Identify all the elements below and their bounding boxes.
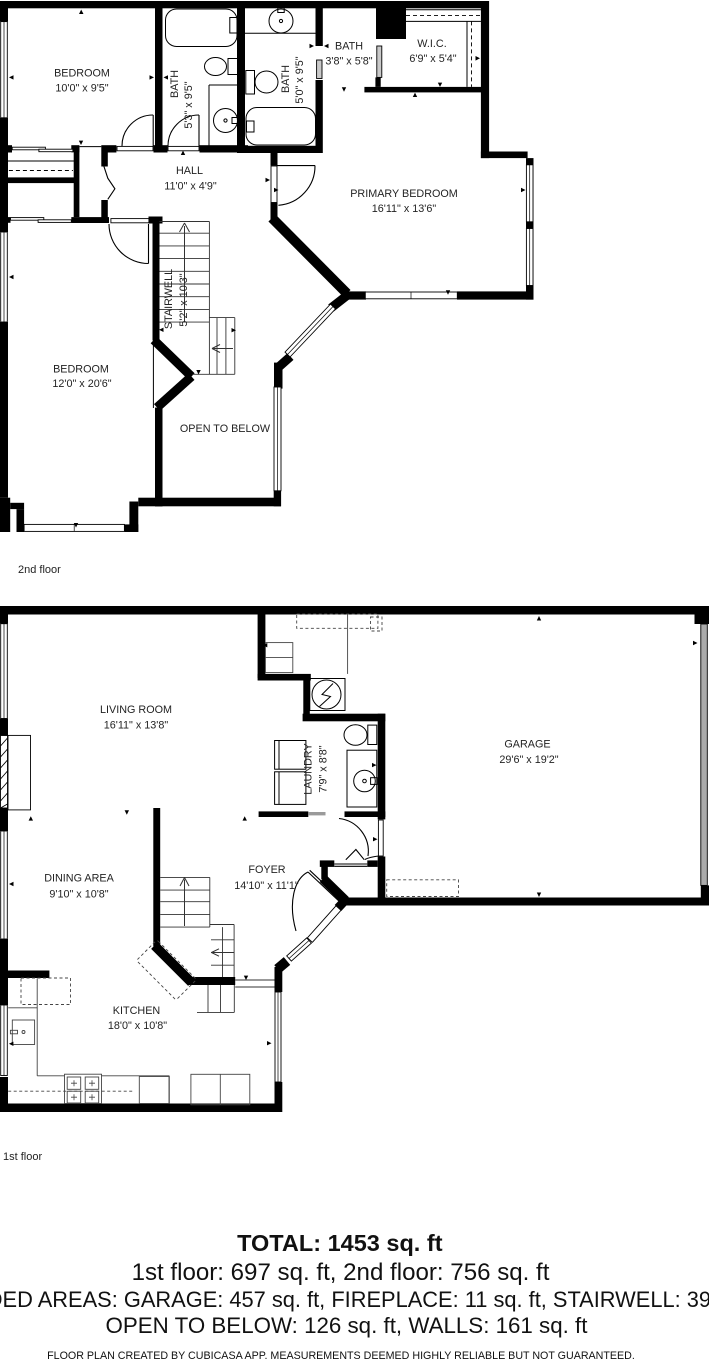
svg-text:KITCHEN: KITCHEN — [113, 1005, 160, 1017]
svg-text:7'9" x 8'8": 7'9" x 8'8" — [318, 745, 330, 792]
svg-text:5'2" x 10'3": 5'2" x 10'3" — [178, 273, 190, 326]
svg-text:HALL: HALL — [176, 165, 203, 177]
svg-text:BEDROOM: BEDROOM — [54, 68, 110, 80]
svg-text:W.I.C.: W.I.C. — [417, 38, 446, 50]
svg-text:29'6" x 19'2": 29'6" x 19'2" — [499, 754, 558, 766]
svg-text:BEDROOM: BEDROOM — [53, 364, 109, 376]
svg-text:5'0" x 9'5": 5'0" x 9'5" — [294, 56, 306, 103]
svg-text:LIVING ROOM: LIVING ROOM — [100, 704, 172, 716]
svg-text:BATH: BATH — [169, 70, 181, 98]
svg-text:STAIRWELL: STAIRWELL — [163, 269, 175, 329]
svg-text:10'0" x 9'5": 10'0" x 9'5" — [55, 83, 108, 95]
svg-text:6'9" x 5'4": 6'9" x 5'4" — [409, 53, 456, 65]
svg-text:12'0" x 20'6": 12'0" x 20'6" — [52, 378, 111, 390]
svg-text:PRIMARY BEDROOM: PRIMARY BEDROOM — [350, 188, 458, 200]
svg-text:OPEN TO BELOW: OPEN TO BELOW — [180, 423, 271, 435]
svg-text:BATH: BATH — [280, 65, 292, 93]
svg-text:18'0" x 10'8": 18'0" x 10'8" — [108, 1020, 167, 1032]
svg-text:BATH: BATH — [335, 41, 363, 53]
svg-text:3'8" x 5'8": 3'8" x 5'8" — [325, 56, 372, 68]
svg-text:5'3" x 9'5": 5'3" x 9'5" — [183, 81, 195, 128]
svg-text:GARAGE: GARAGE — [504, 739, 550, 751]
svg-text:16'11" x 13'6": 16'11" x 13'6" — [372, 203, 437, 215]
svg-text:9'10" x 10'8": 9'10" x 10'8" — [49, 889, 108, 901]
svg-text:16'11" x 13'8": 16'11" x 13'8" — [104, 720, 169, 732]
svg-text:11'0" x 4'9": 11'0" x 4'9" — [164, 181, 217, 193]
svg-text:LAUNDRY: LAUNDRY — [303, 743, 315, 794]
svg-text:FOYER: FOYER — [248, 864, 285, 876]
svg-text:DINING AREA: DINING AREA — [44, 873, 114, 885]
svg-text:14'10" x 11'1": 14'10" x 11'1" — [234, 880, 299, 892]
